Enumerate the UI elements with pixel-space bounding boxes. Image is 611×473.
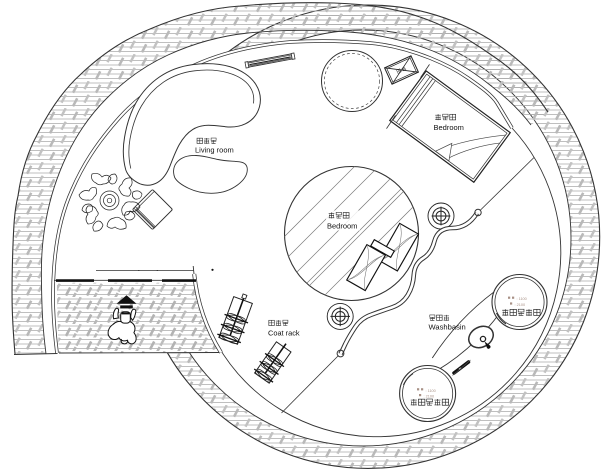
svg-text:Bedroom: Bedroom bbox=[327, 221, 357, 230]
svg-text:: 1100: : 1100 bbox=[517, 297, 527, 301]
svg-text:Bedroom: Bedroom bbox=[434, 123, 464, 132]
svg-text:Coat rack: Coat rack bbox=[268, 329, 300, 338]
svg-text:Washbasin: Washbasin bbox=[429, 323, 466, 332]
svg-text:: 2100: : 2100 bbox=[515, 303, 526, 307]
svg-text:: 1100: : 1100 bbox=[426, 389, 436, 393]
svg-text:: 2100: : 2100 bbox=[424, 395, 435, 399]
svg-text:Living room: Living room bbox=[195, 145, 234, 154]
